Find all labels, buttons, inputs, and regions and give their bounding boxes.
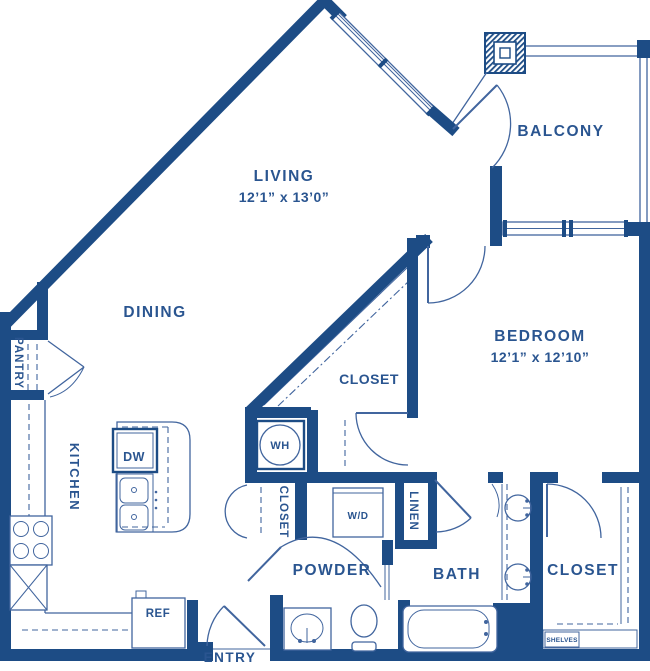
balcony-label: BALCONY (517, 123, 604, 140)
bedroom-dimensions: 12’1” x 12’10” (491, 349, 590, 365)
pantry-label: PANTRY (12, 337, 24, 389)
hall-closet-label: CLOSET (277, 486, 289, 539)
kitchen-label: KITCHEN (67, 443, 82, 511)
tub-faucet (484, 632, 488, 636)
wall-pantry-bottom (0, 390, 44, 400)
balcony-door-leaf (453, 85, 497, 129)
wall-closet-right (407, 238, 418, 418)
wall-window-end-block (627, 222, 650, 236)
powder-door-leaf (248, 547, 281, 581)
wall-bath-corner-block (493, 603, 543, 651)
bedroom-closet-door-arc (547, 484, 601, 538)
bedroom-closet-label: CLOSET (547, 562, 619, 579)
tub-faucet (484, 620, 488, 624)
wall-bedroom-left (490, 166, 502, 246)
balcony-door-frame-line (452, 72, 487, 124)
balcony-column (485, 33, 525, 73)
window-mullion (569, 220, 573, 237)
wall-right (639, 226, 650, 661)
bath-sinks (505, 495, 531, 590)
wall-linen-right (428, 483, 437, 540)
bedroom-window (503, 220, 628, 237)
vanity-door-arc (492, 484, 499, 517)
refrigerator-label: REF (146, 608, 171, 620)
floorplan: LIVING 12’1” x 13’0” DINING BALCONY BEDR… (0, 0, 650, 671)
bedroom-door-arc (428, 246, 485, 303)
wall-bedroom-closet-top-left (540, 472, 558, 483)
triangle-closet-door-arc (356, 413, 408, 465)
sink-bowl (120, 478, 148, 503)
wall-diagonal-main (0, 0, 327, 330)
linen-label: LINEN (407, 491, 419, 531)
bathtub (403, 606, 497, 652)
wall-wh-left (245, 407, 257, 483)
powder-partition (385, 562, 389, 600)
wall-entry-right-jamb (270, 595, 283, 661)
wall-linen-bottom (395, 540, 437, 549)
living-diagonal-window (331, 11, 435, 115)
kitchen-sink (116, 474, 157, 532)
bath-label: BATH (433, 566, 481, 583)
water-heater-label: WH (270, 440, 289, 452)
wall-bath-closet (530, 472, 543, 603)
stove (10, 516, 52, 565)
rail-cap (637, 40, 650, 58)
wall-pantry-stub (37, 282, 48, 340)
wall-hall-closet-right (295, 483, 307, 540)
wall-bath-top-stub (488, 472, 503, 483)
kitchen-island (113, 422, 190, 532)
floorplan-svg: LIVING 12’1” x 13’0” DINING BALCONY BEDR… (0, 0, 650, 671)
wall-linen-left (395, 483, 404, 540)
shelves-label: SHELVES (546, 637, 578, 644)
dishwasher-label: DW (123, 450, 145, 464)
bedroom-label: BEDROOM (494, 328, 585, 345)
powder-sink (284, 608, 331, 650)
window-mullion (624, 220, 628, 237)
bath-door-leaf (435, 480, 471, 518)
wall-bedroom-closet-top-right (602, 472, 640, 483)
washer-dryer-label: W/D (348, 511, 369, 522)
entry-door-arc (207, 606, 224, 646)
wall-bottom-left (0, 649, 196, 661)
bath-door-arc (436, 518, 471, 532)
toilet (351, 605, 377, 651)
powder-label: POWDER (293, 562, 372, 579)
column-inner (500, 48, 510, 58)
balcony-door-arc (492, 85, 511, 168)
pantry-shelf-dashes (28, 344, 37, 390)
living-dimensions: 12’1” x 13’0” (239, 189, 330, 205)
hall-closet-door-arc (225, 485, 247, 538)
wall-powder-stub (382, 540, 393, 565)
triangle-closet-label: CLOSET (339, 371, 399, 387)
corner-cabinet (10, 565, 47, 610)
entry-door-leaf (224, 606, 265, 646)
window-mullion (562, 220, 566, 237)
dining-label: DINING (123, 304, 186, 321)
wall-mid-horizontal (245, 472, 437, 483)
living-label: LIVING (254, 168, 315, 185)
pantry-door-leaf-top (48, 341, 84, 367)
window-mullion (503, 220, 507, 237)
entry-label: ENTRY (204, 650, 257, 665)
sink-bowl (120, 505, 148, 530)
